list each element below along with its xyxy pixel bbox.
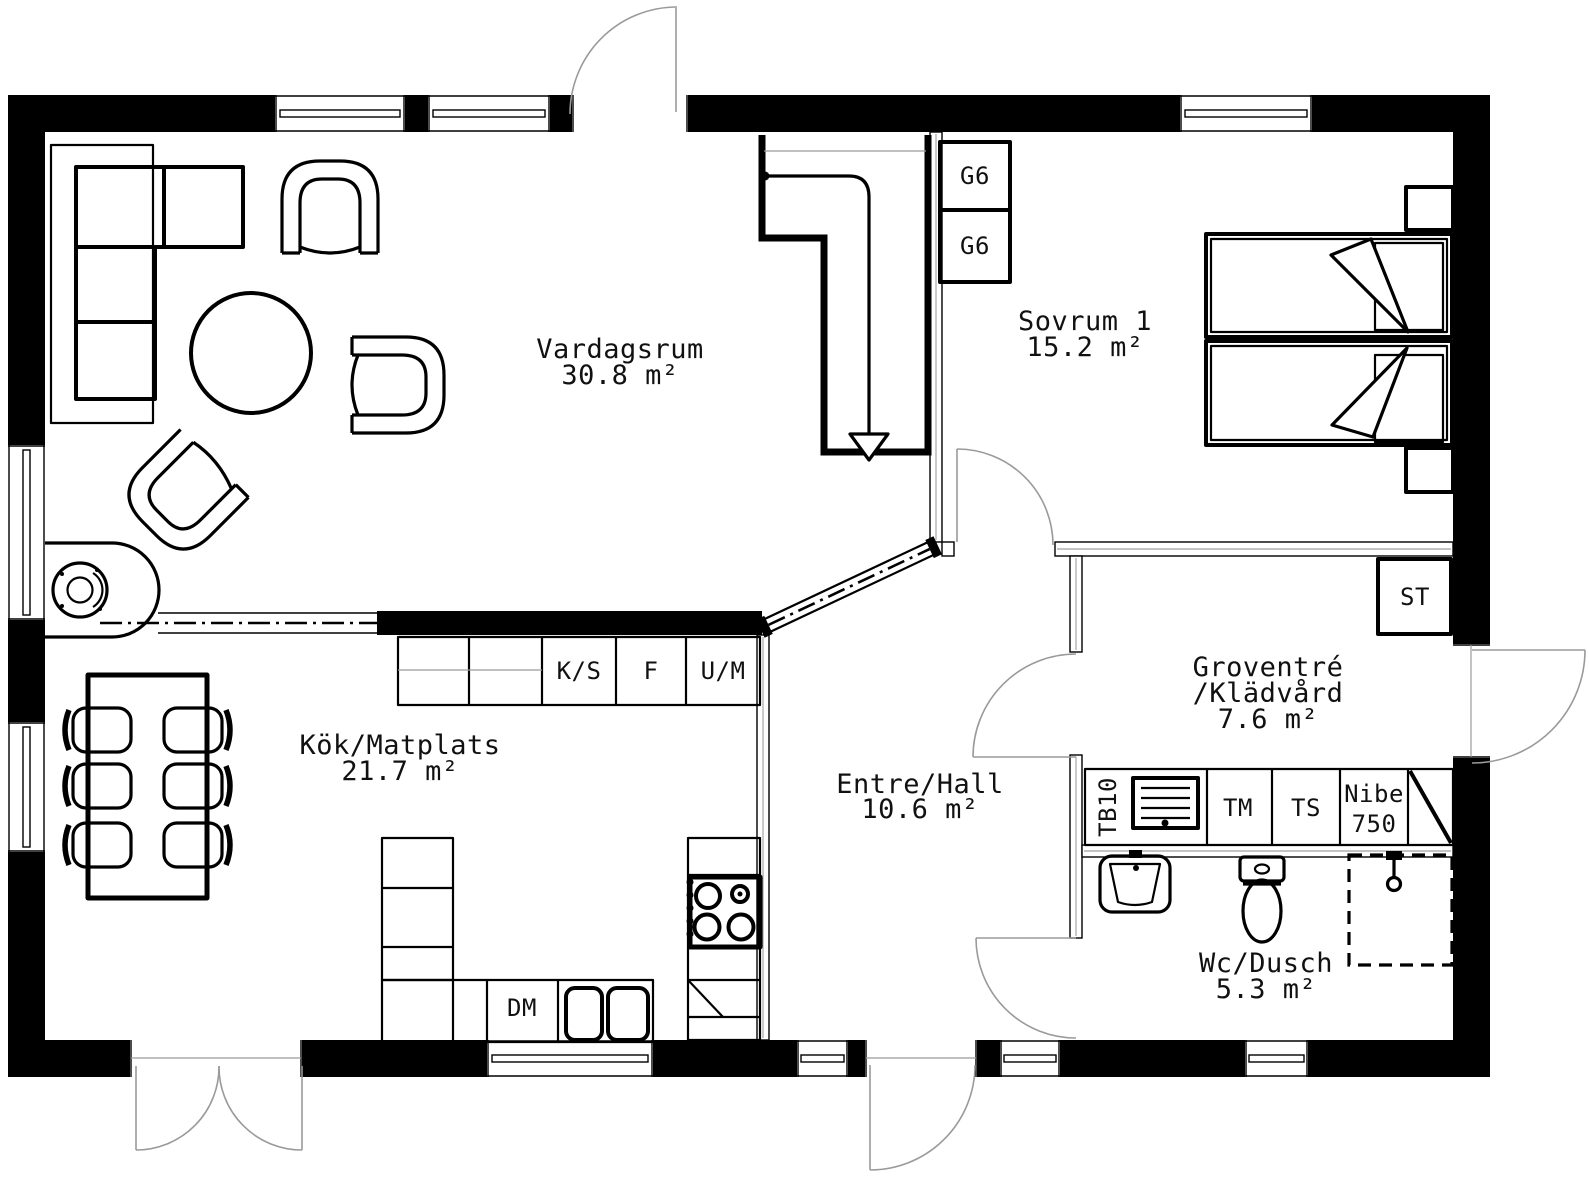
room-label-vardagsrum: Vardagsrum 30.8 m²	[536, 334, 704, 391]
door-swing-french-doors	[136, 1066, 302, 1150]
nightstand	[1406, 448, 1453, 492]
chair	[65, 823, 131, 867]
laundry-bench-label: TB10	[1094, 777, 1122, 837]
window	[1000, 1040, 1060, 1077]
svg-text:7.6 m²: 7.6 m²	[1218, 704, 1319, 735]
room-label-kok-matplats: Kök/Matplats 21.7 m²	[299, 730, 500, 787]
room-label-sovrum1: Sovrum 1 15.2 m²	[1018, 306, 1152, 363]
toilet-icon	[1240, 857, 1284, 942]
floor-plan: G6 G6 K/S F U/M	[0, 0, 1589, 1187]
armchair	[116, 428, 250, 562]
wardrobe-g6-top: G6	[940, 142, 1010, 210]
svg-text:5.3 m²: 5.3 m²	[1216, 974, 1317, 1005]
fridge-label: K/S	[557, 657, 602, 685]
chair	[65, 764, 131, 808]
coffee-table	[191, 293, 311, 413]
water-heater-label2: 750	[1352, 810, 1397, 838]
stove-icon	[687, 877, 761, 947]
door-opening	[130, 1040, 302, 1077]
kitchen-sink-icon	[566, 988, 648, 1040]
svg-text:G6: G6	[960, 162, 990, 190]
interior-walls	[377, 132, 1453, 1040]
kitchen-tall-cabinets: K/S F U/M	[398, 637, 760, 705]
armchair	[352, 337, 444, 433]
laundry-bench-icon	[1133, 778, 1198, 828]
svg-text:15.2 m²: 15.2 m²	[1026, 332, 1143, 363]
laundry-appliance-row: TB10 TM TS Nibe 750	[1085, 769, 1453, 845]
chair	[164, 764, 230, 808]
door-swing-groventre	[973, 654, 1076, 757]
oven-micro-label: U/M	[701, 657, 746, 685]
shower-icon	[1349, 851, 1452, 965]
wc-sink-icon	[1100, 850, 1170, 912]
door-opening	[1453, 644, 1490, 758]
window	[797, 1040, 848, 1077]
nightstand	[1406, 187, 1453, 230]
door-opening	[572, 95, 688, 132]
room-label-entre-hall: Entre/Hall 10.6 m²	[836, 769, 1004, 825]
door-swing-bedroom	[957, 449, 1053, 545]
svg-text:30.8 m²: 30.8 m²	[561, 360, 678, 391]
ceiling-beam	[100, 613, 377, 633]
drying-cabinet-label: TS	[1291, 794, 1321, 822]
sliding-door	[756, 536, 942, 638]
chair	[164, 823, 230, 867]
exterior-walls	[8, 95, 1490, 1077]
svg-text:ST: ST	[1400, 583, 1430, 611]
dishwasher-label: DM	[507, 994, 537, 1022]
chair	[164, 708, 230, 752]
window	[1180, 95, 1312, 132]
water-heater-label: Nibe	[1344, 780, 1404, 808]
window	[8, 445, 45, 620]
window	[1245, 1040, 1308, 1077]
window	[428, 95, 550, 132]
room-label-wc-dusch: Wc/Dusch 5.3 m²	[1199, 948, 1333, 1005]
armchair	[282, 161, 378, 253]
wardrobe-g6-bottom: G6	[940, 210, 1010, 282]
door-swing-hall-exterior	[870, 1065, 975, 1170]
cleaning-cabinet: ST	[1378, 559, 1451, 634]
freezer-label: F	[644, 657, 659, 685]
bed	[1206, 341, 1452, 445]
room-label-groventre: Groventré /Klädvård 7.6 m²	[1193, 652, 1344, 735]
svg-text:21.7 m²: 21.7 m²	[341, 756, 458, 787]
door-swing-wc	[976, 938, 1076, 1038]
svg-text:10.6 m²: 10.6 m²	[861, 794, 978, 825]
window	[487, 1040, 653, 1077]
sofa	[51, 145, 243, 423]
window	[8, 722, 45, 852]
chair	[65, 708, 131, 752]
washing-machine-label: TM	[1223, 794, 1253, 822]
bed	[1206, 234, 1452, 337]
svg-text:G6: G6	[960, 232, 990, 260]
stairs	[761, 135, 929, 460]
window	[275, 95, 405, 132]
door-opening	[865, 1040, 977, 1077]
